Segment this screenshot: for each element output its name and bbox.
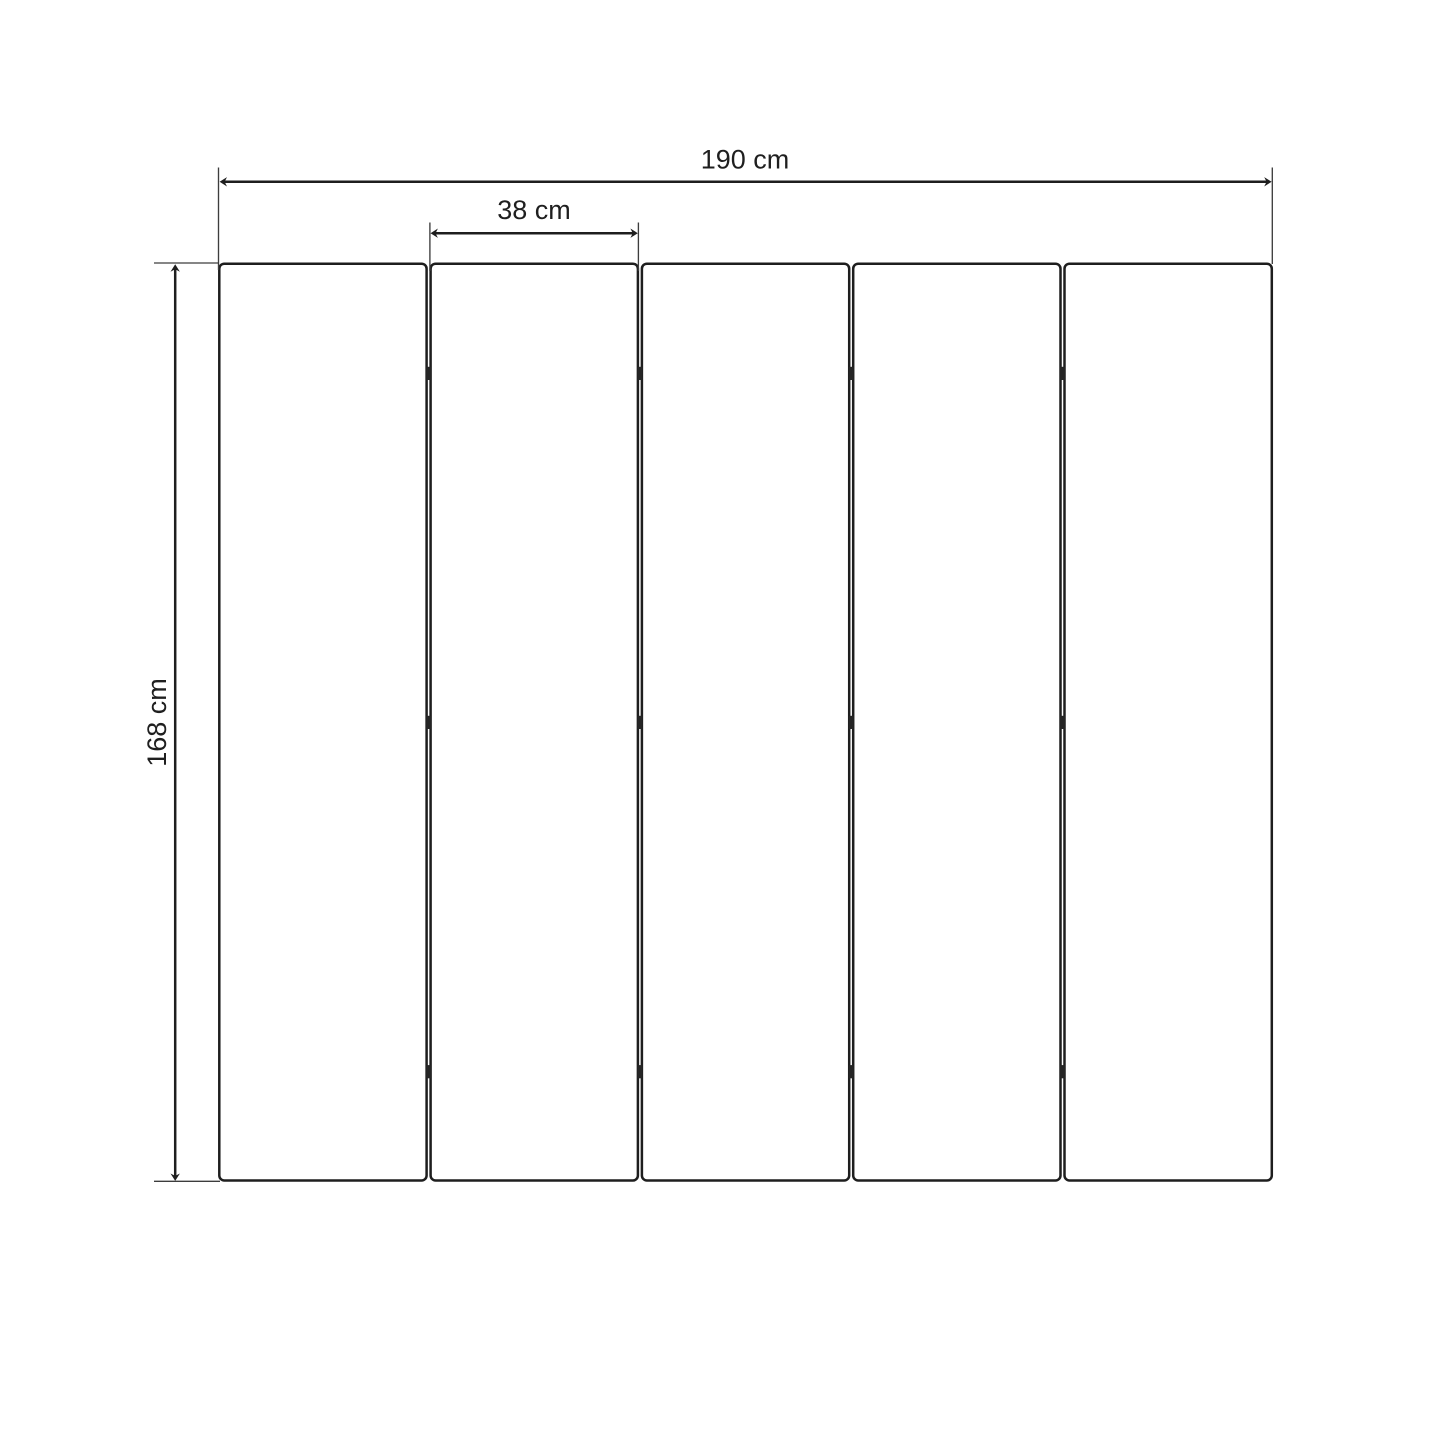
svg-text:190 cm: 190 cm [701,145,790,175]
svg-text:38 cm: 38 cm [497,195,571,225]
svg-text:168 cm: 168 cm [142,678,172,767]
